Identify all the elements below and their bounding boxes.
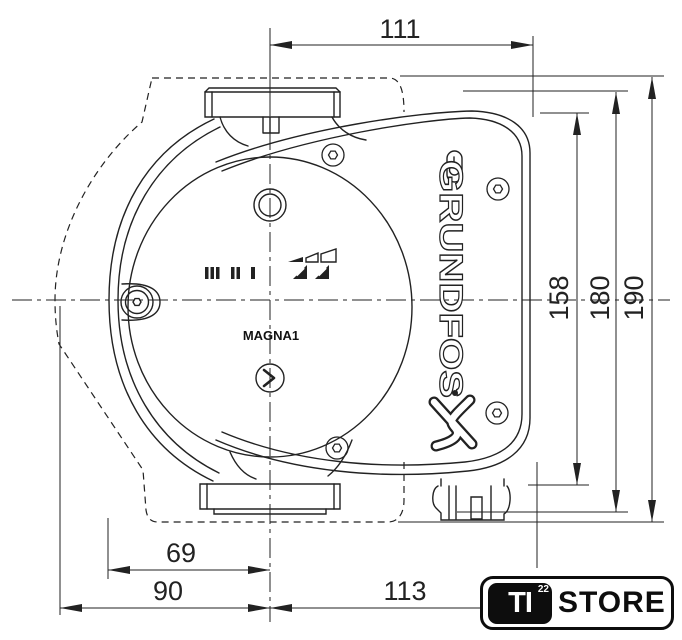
- screw-icon: [487, 178, 509, 200]
- grundfos-logo-text: GRUNDFOS: [433, 160, 469, 398]
- control-box-inner: [222, 118, 522, 465]
- logo-store-text: STORE: [558, 588, 666, 618]
- pump-dimension-drawing: GRUNDFOS MAGNA1 111 158 180 190 69 90 11…: [0, 0, 682, 640]
- drawing-canvas: GRUNDFOS MAGNA1 111 158 180 190 69 90 11…: [0, 0, 682, 640]
- grundfos-trademark-dot: [452, 390, 458, 396]
- screw-icon: [326, 437, 348, 459]
- dimension-113-label: 113: [383, 576, 426, 606]
- speed-select-button-icon: [293, 265, 329, 279]
- speed-ramp-icon: [288, 249, 336, 262]
- dimension-arrows: [60, 41, 656, 612]
- dimension-158-label: 158: [544, 275, 574, 320]
- ti22-store-logo: TI 22 STORE: [480, 576, 674, 630]
- screw-icon: [486, 402, 508, 424]
- bottom-flange: [200, 440, 352, 514]
- screw-icon: [322, 144, 344, 166]
- model-label: MAGNA1: [243, 328, 299, 343]
- logo-prefix: TI: [508, 589, 532, 618]
- grundfos-x-mark-icon: [434, 400, 472, 446]
- electrical-connector: [433, 479, 510, 520]
- control-box-outer: [216, 111, 530, 474]
- dimension-180-label: 180: [585, 275, 615, 320]
- ti22-badge: TI 22: [488, 583, 552, 624]
- dimension-190-label: 190: [619, 275, 649, 320]
- dimension-69-label: 69: [166, 538, 196, 568]
- speed-setting-bars-icon: [205, 267, 255, 279]
- dimension-90-label: 90: [153, 576, 183, 606]
- logo-superscript: 22: [538, 585, 549, 595]
- boss-screw-icon: [121, 284, 160, 321]
- top-flange: [205, 88, 366, 146]
- dimension-111-label: 111: [379, 14, 420, 44]
